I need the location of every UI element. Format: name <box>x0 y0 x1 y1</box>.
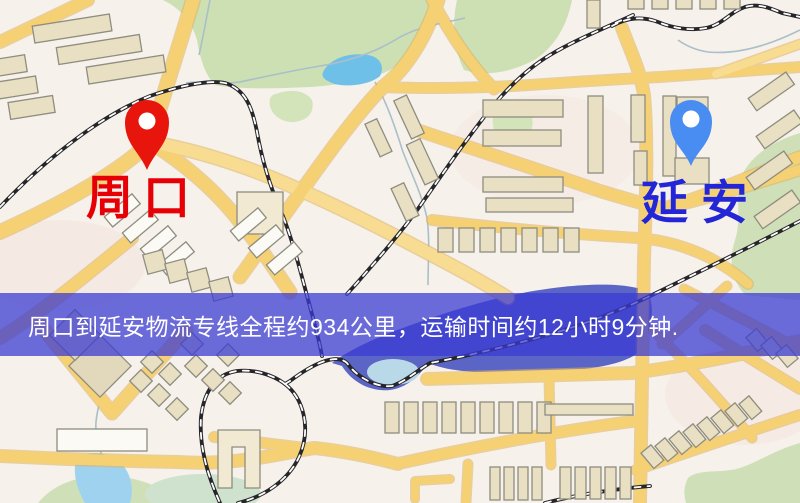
destination-pin-hole <box>683 111 700 128</box>
map-canvas[interactable] <box>0 0 800 503</box>
route-info-text: 周口到延安物流专线全程约934公里，运输时间约12小时9分钟. <box>28 308 679 342</box>
destination-city-label: 延安 <box>641 179 761 226</box>
origin-pin-hole <box>139 113 156 130</box>
logistics-map-image: 周口 延安 周口到延安物流专线全程约934公里，运输时间约12小时9分钟. <box>0 0 800 503</box>
route-info-banner: 周口到延安物流专线全程约934公里，运输时间约12小时9分钟. <box>0 293 800 356</box>
origin-city-label: 周口 <box>86 174 200 221</box>
